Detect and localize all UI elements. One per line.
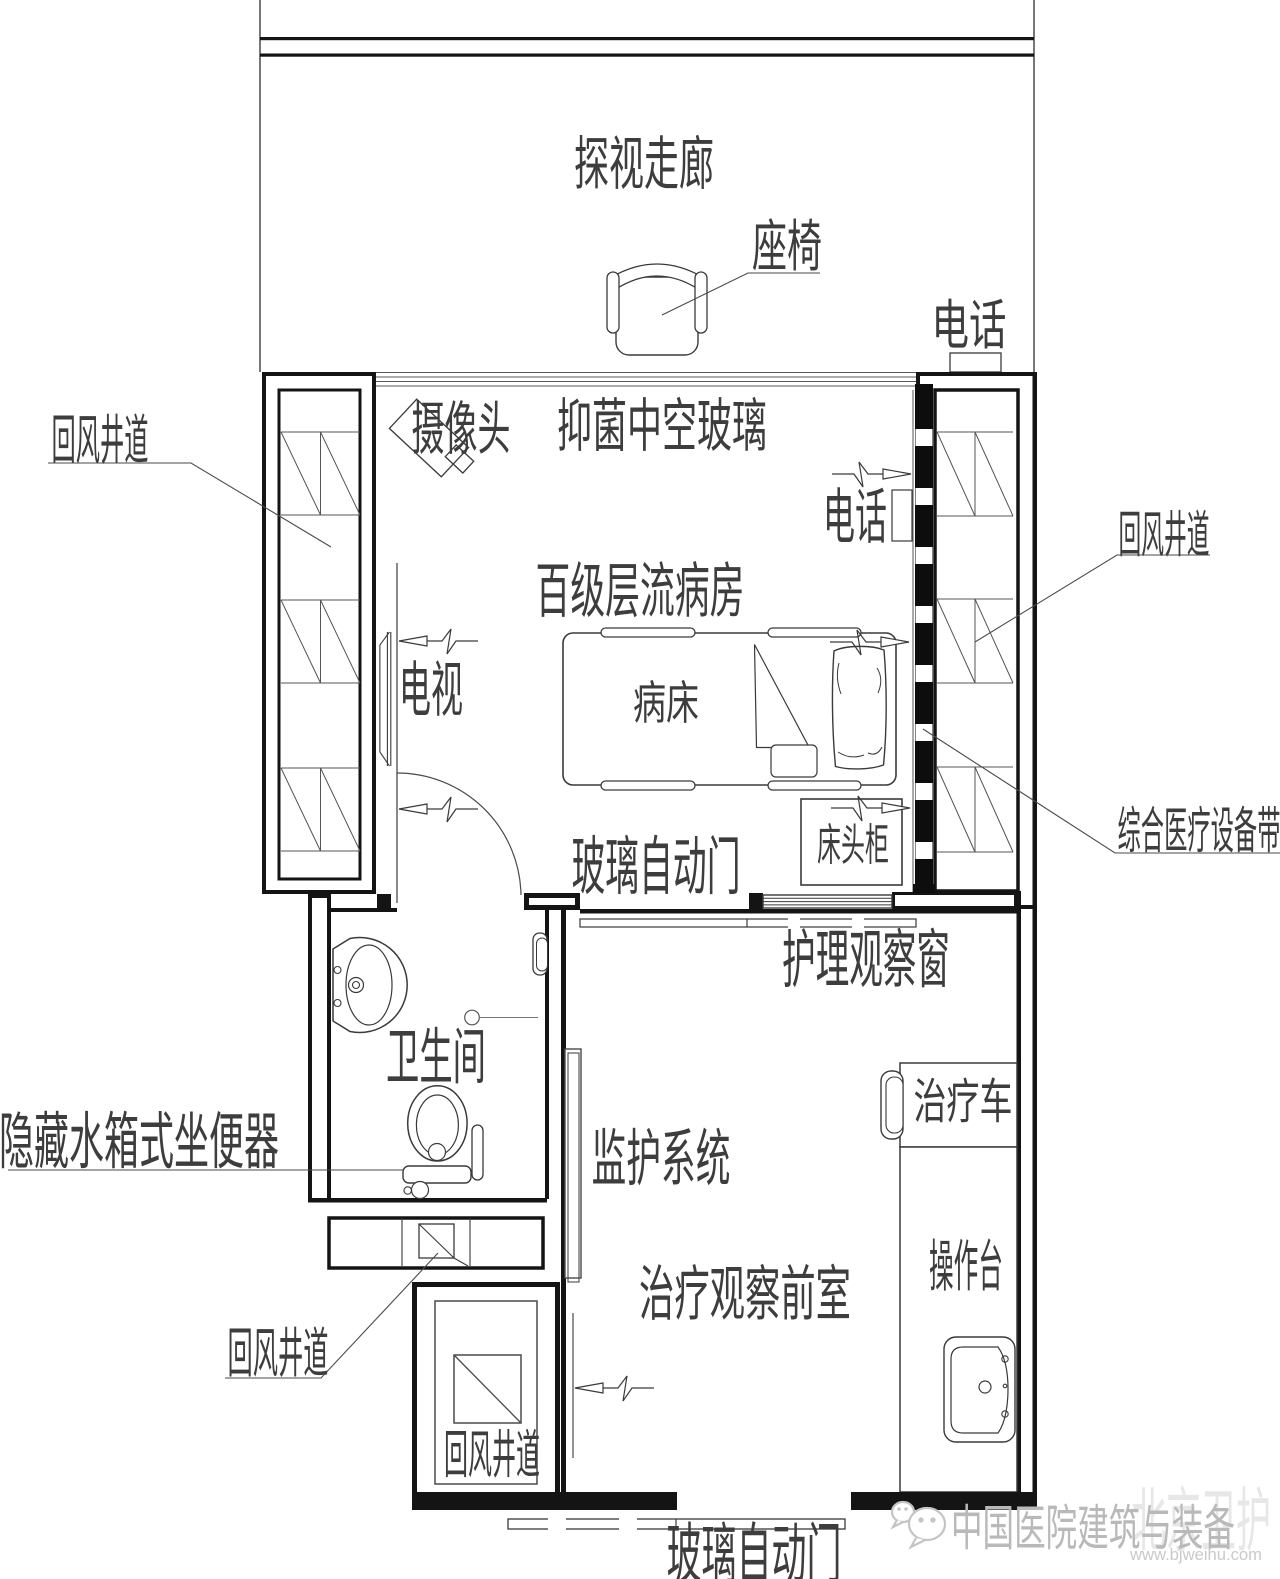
svg-text:隐藏水箱式坐便器: 隐藏水箱式坐便器: [0, 1108, 279, 1177]
svg-text:玻璃自动门: 玻璃自动门: [667, 1517, 842, 1579]
svg-text:摄像头: 摄像头: [412, 397, 511, 462]
svg-text:座椅: 座椅: [752, 215, 822, 278]
svg-text:百级层流病房: 百级层流病房: [536, 558, 745, 625]
svg-text:回风井道: 回风井道: [228, 1324, 329, 1384]
svg-text:电话: 电话: [932, 296, 1007, 356]
svg-text:探视走廊: 探视走廊: [574, 132, 714, 197]
svg-text:卫生间: 卫生间: [386, 1023, 486, 1091]
svg-text:电视: 电视: [399, 657, 463, 724]
svg-text:护理观察窗: 护理观察窗: [782, 924, 950, 996]
svg-text:治疗观察前室: 治疗观察前室: [639, 1261, 851, 1328]
svg-text:电话: 电话: [823, 484, 887, 551]
svg-text:www.bjweihu.com: www.bjweihu.com: [1129, 1545, 1262, 1564]
svg-text:抑菌中空玻璃: 抑菌中空玻璃: [557, 394, 767, 459]
svg-text:玻璃自动门: 玻璃自动门: [572, 831, 741, 903]
svg-text:监护系统: 监护系统: [592, 1125, 731, 1194]
svg-text:床头柜: 床头柜: [817, 821, 889, 870]
svg-text:操作台: 操作台: [929, 1235, 1003, 1298]
svg-text:治疗车: 治疗车: [914, 1076, 1013, 1129]
svg-text:回风井道: 回风井道: [444, 1427, 540, 1485]
svg-text:病床: 病床: [633, 677, 699, 729]
svg-text:综合医疗设备带: 综合医疗设备带: [1118, 803, 1280, 859]
svg-text:回风井道: 回风井道: [52, 411, 149, 471]
